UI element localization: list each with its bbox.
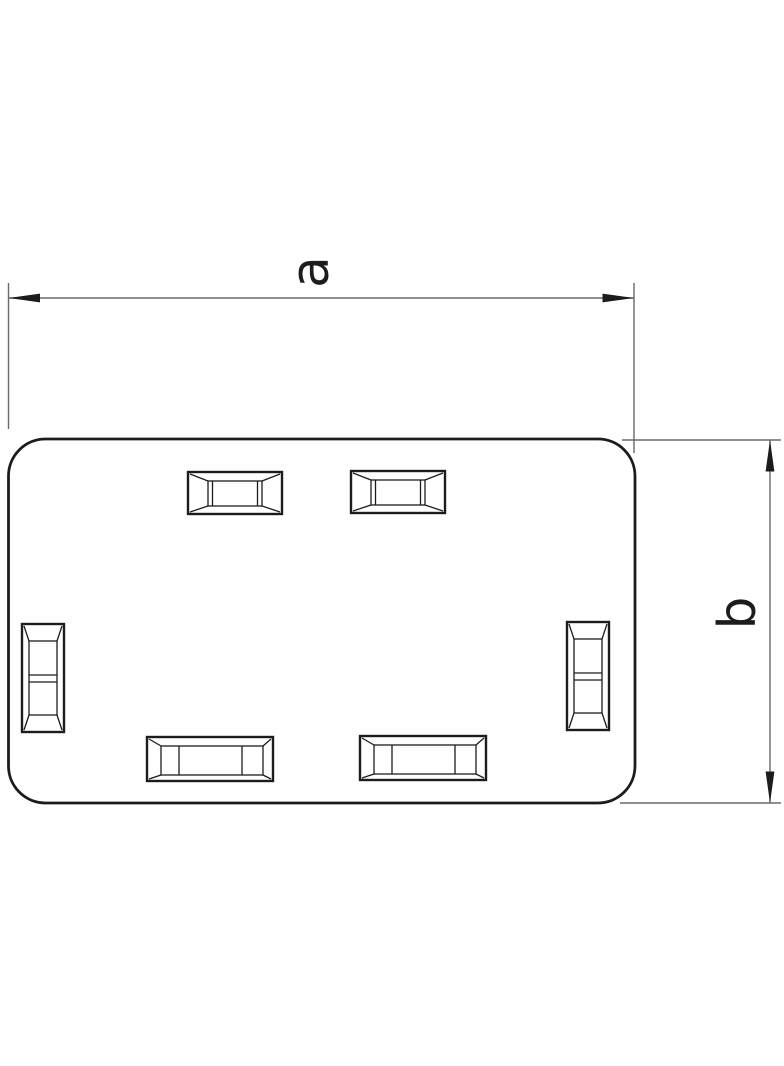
dimension-a-arrow-left-icon [9,294,41,303]
end-piece-dimension-drawing: a b [0,0,784,1066]
dimension-a-label: a [281,256,341,288]
technical-drawing-page: a b [0,0,784,1066]
end-piece-outline [9,439,636,803]
dimension-b-arrow-down-icon [766,772,775,804]
dimension-b: b [620,440,781,803]
dimension-b-arrow-up-icon [766,440,775,472]
dimension-a: a [9,256,635,453]
dimension-a-arrow-right-icon [603,294,635,303]
part-body [9,439,636,803]
dimension-b-label: b [708,596,768,629]
